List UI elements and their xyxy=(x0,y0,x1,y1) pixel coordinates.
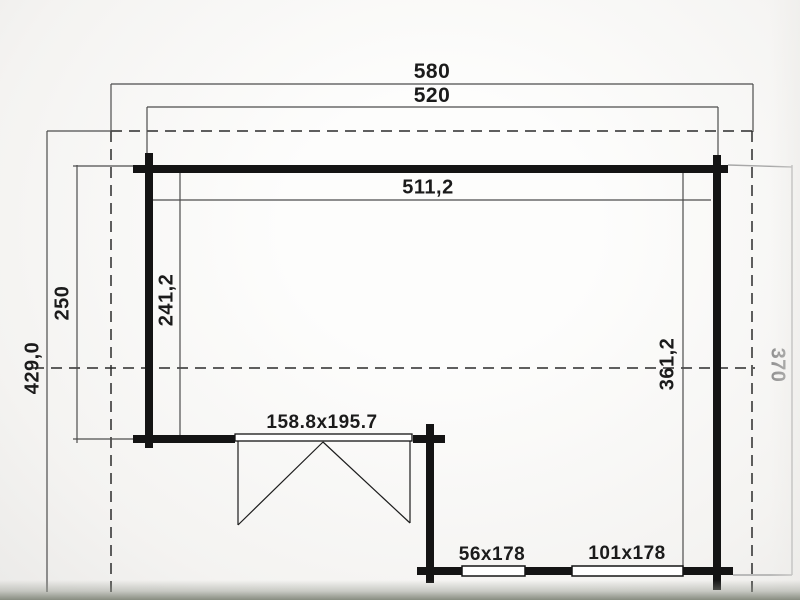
floor-plan-drawing xyxy=(0,0,800,600)
floor-plan-page: 580 520 511,2 429,0 250 241,2 361,2 370 … xyxy=(0,0,800,600)
wall-right xyxy=(713,155,721,590)
label-right-inner-depth: 361,2 xyxy=(657,338,680,391)
window-large xyxy=(572,566,683,576)
label-left-inner-depth: 241,2 xyxy=(156,274,179,327)
photo-shadow-band xyxy=(0,580,800,600)
label-roof-width: 580 xyxy=(414,60,451,84)
wall-step xyxy=(426,424,434,583)
label-window-small-size: 56x178 xyxy=(459,544,525,566)
label-roof-depth: 429,0 xyxy=(22,342,45,395)
wall-front-left xyxy=(133,435,235,443)
label-left-outer-depth: 250 xyxy=(52,286,75,321)
wall-left xyxy=(145,153,153,448)
label-door-size: 158.8x195.7 xyxy=(266,412,377,434)
label-outer-width: 520 xyxy=(414,84,451,108)
door-right-leaf-swing xyxy=(323,442,410,523)
window-small xyxy=(462,566,525,576)
photo-edge-fade xyxy=(770,0,800,600)
door-left-leaf-swing xyxy=(238,442,323,525)
door-frame xyxy=(235,434,412,441)
label-inner-width: 511,2 xyxy=(402,177,453,200)
label-window-large-size: 101x178 xyxy=(588,543,665,565)
wall-top xyxy=(133,165,728,173)
